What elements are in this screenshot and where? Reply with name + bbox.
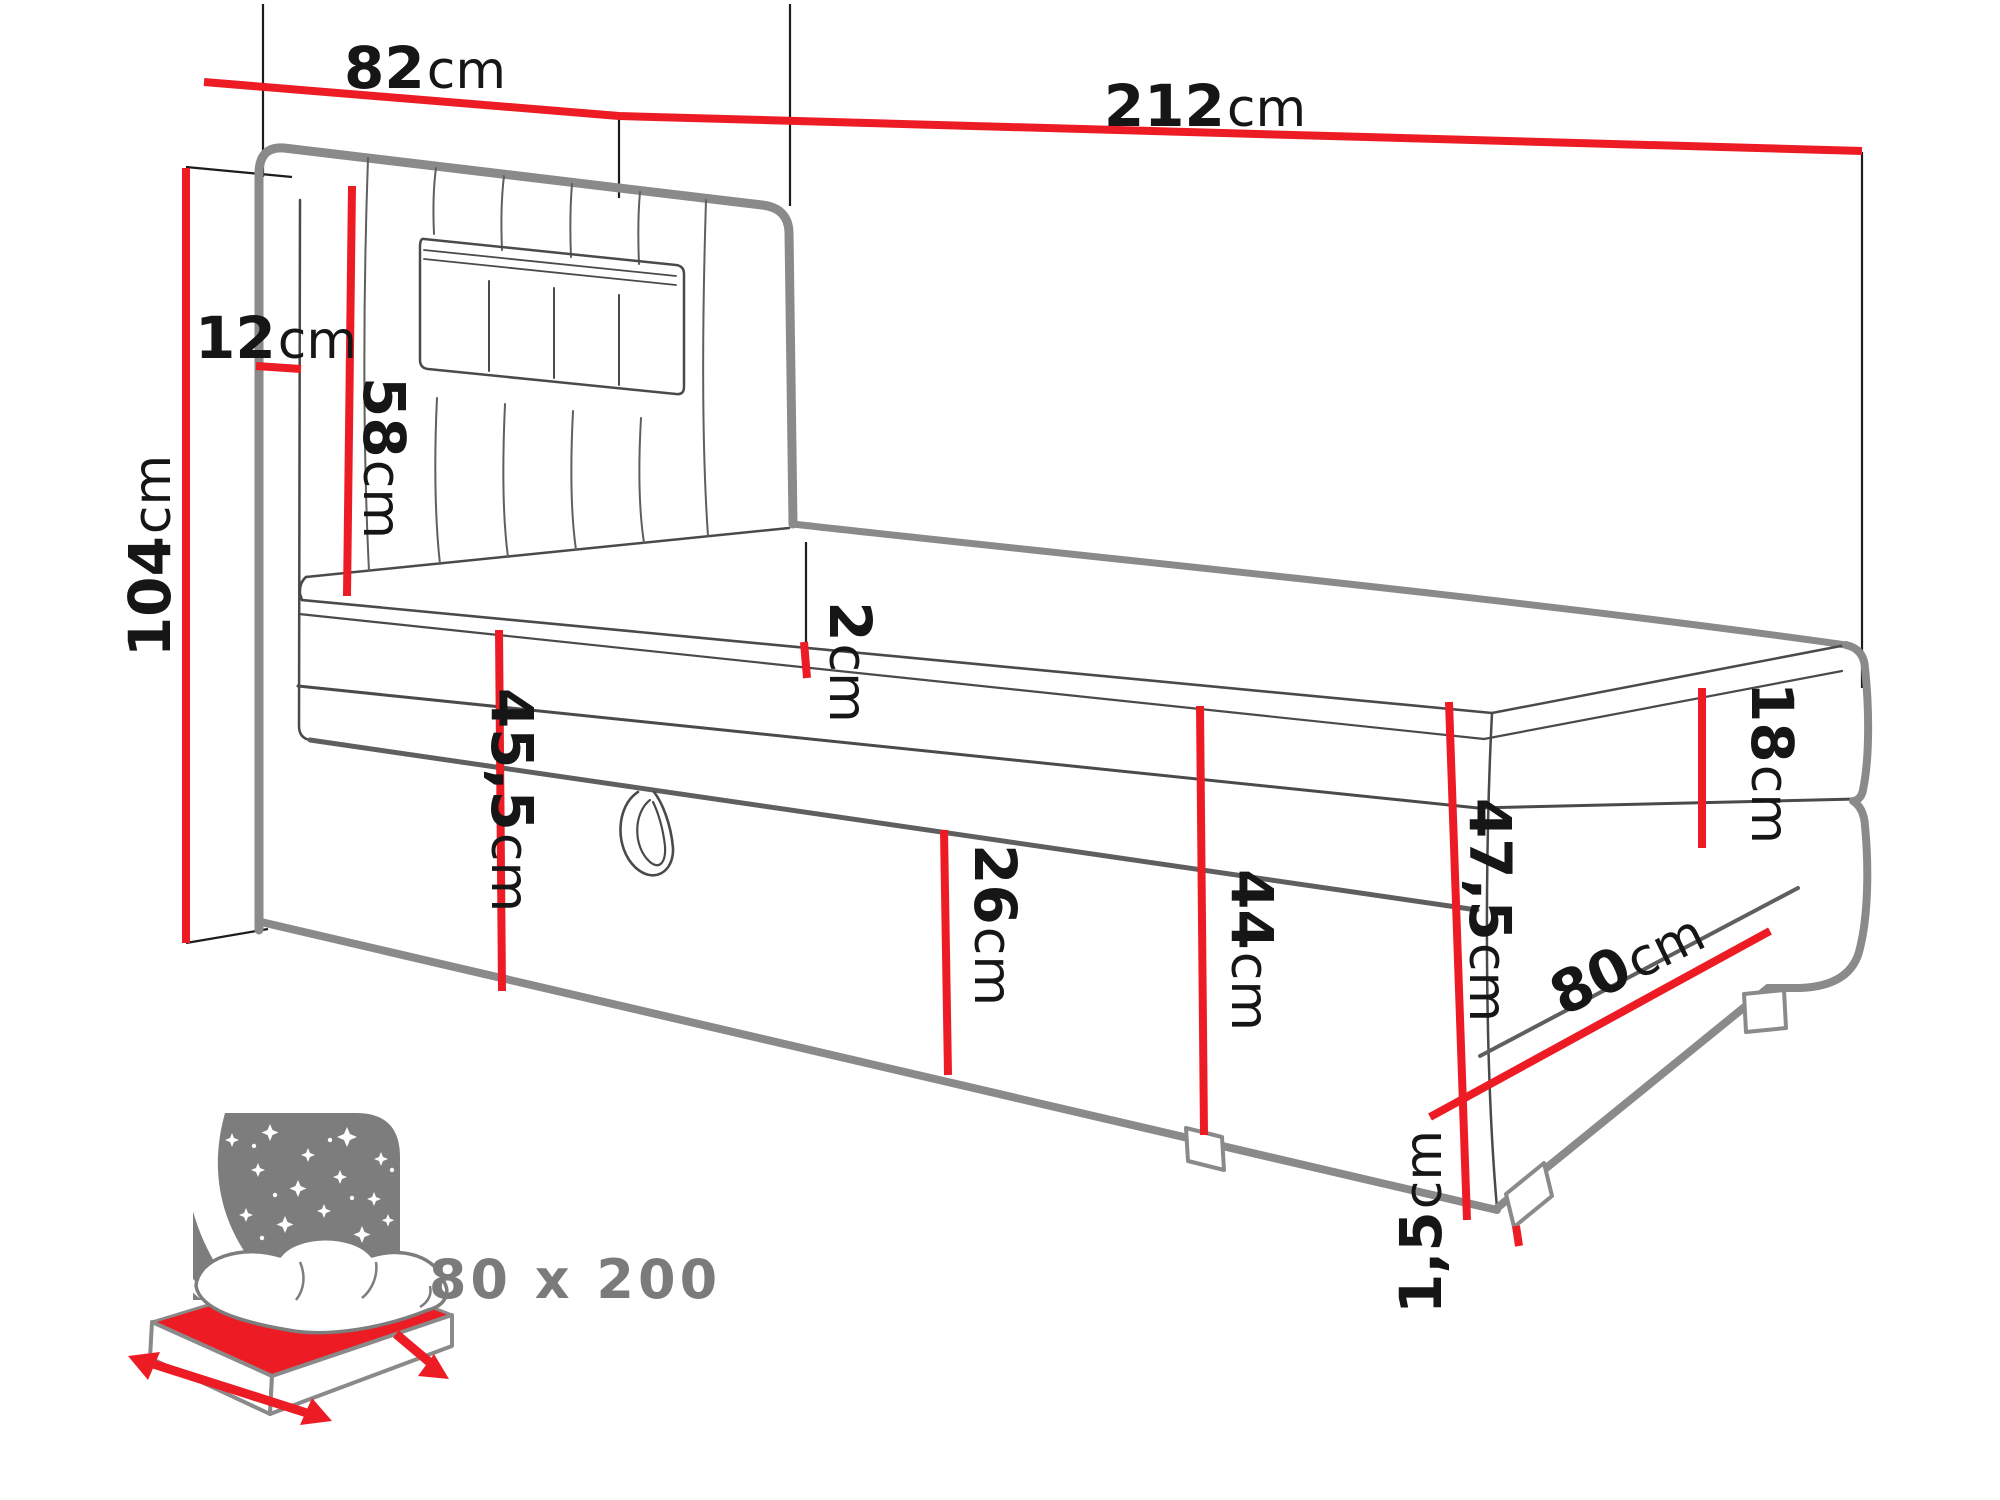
headboard-shelf-inset [420,239,684,394]
dim-label-26cm: 26cm [961,844,1029,1006]
dim-label-45-5cm: 45,5cm [478,688,546,912]
dim-line-26 [944,830,948,1075]
dim-label-82cm: 82cm [344,34,506,102]
dim-label-1-5cm: 1,5cm [1387,1130,1455,1314]
base-bottom-edge [261,922,1497,1210]
flap-handle [620,792,673,875]
dim-label-58cm: 58cm [350,377,418,539]
headboard-tufting-seams [364,158,708,571]
dim-tick-2 [804,642,807,678]
dim-line-44 [1200,706,1204,1135]
badge-size-label: 80 x 200 [429,1248,721,1311]
dim-label-12cm: 12cm [195,304,357,372]
dim-label-104cm: 104cm [116,455,184,657]
dimension-lines [186,82,1862,1246]
dim-label-212cm: 212cm [1104,72,1306,140]
dim-label-47-5cm: 47,5cm [1456,798,1524,1022]
dim-label-18cm: 18cm [1738,682,1806,844]
bed-dimension-diagram: 82cm 212cm 104cm 12cm 58cm 2cm 45,5cm 26… [0,0,2000,1500]
mattress-bottom-seam [298,686,1478,808]
diagram-svg: 82cm 212cm 104cm 12cm 58cm 2cm 45,5cm 26… [0,0,2000,1500]
extension-line-104-top [186,167,292,177]
bed-leg-foot-far [1744,990,1786,1032]
dim-label-2cm: 2cm [816,601,884,723]
bed-leg-foot-near [1506,1163,1552,1227]
topper-seam [299,614,1484,739]
dim-tick-1-5 [1516,1226,1519,1246]
headboard-front-edge [299,200,310,740]
dim-label-44cm: 44cm [1218,869,1286,1031]
duvet-pillows-icon [196,1239,447,1333]
size-badge: 80 x 200 [128,1113,721,1425]
mattress-wall-junction [793,524,1846,645]
